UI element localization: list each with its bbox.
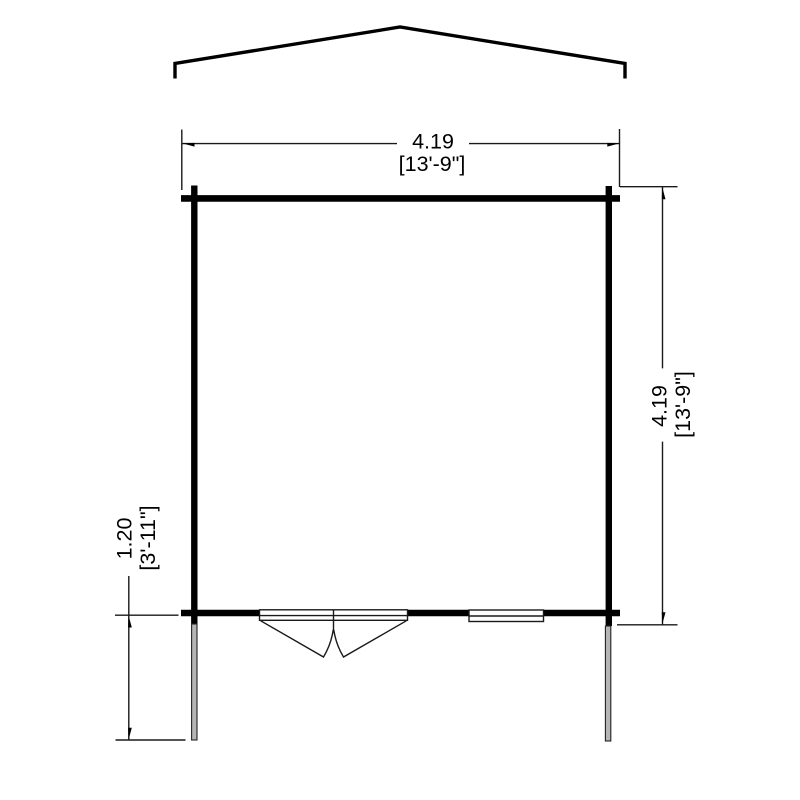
svg-text:4.19: 4.19	[412, 130, 454, 154]
svg-text:1.20: 1.20	[113, 518, 137, 560]
svg-text:4.19: 4.19	[647, 385, 671, 427]
svg-text:[3'-11"]: [3'-11"]	[136, 505, 160, 570]
svg-text:[13'-9"]: [13'-9"]	[399, 152, 466, 176]
svg-text:[13'-9"]: [13'-9"]	[671, 371, 695, 438]
